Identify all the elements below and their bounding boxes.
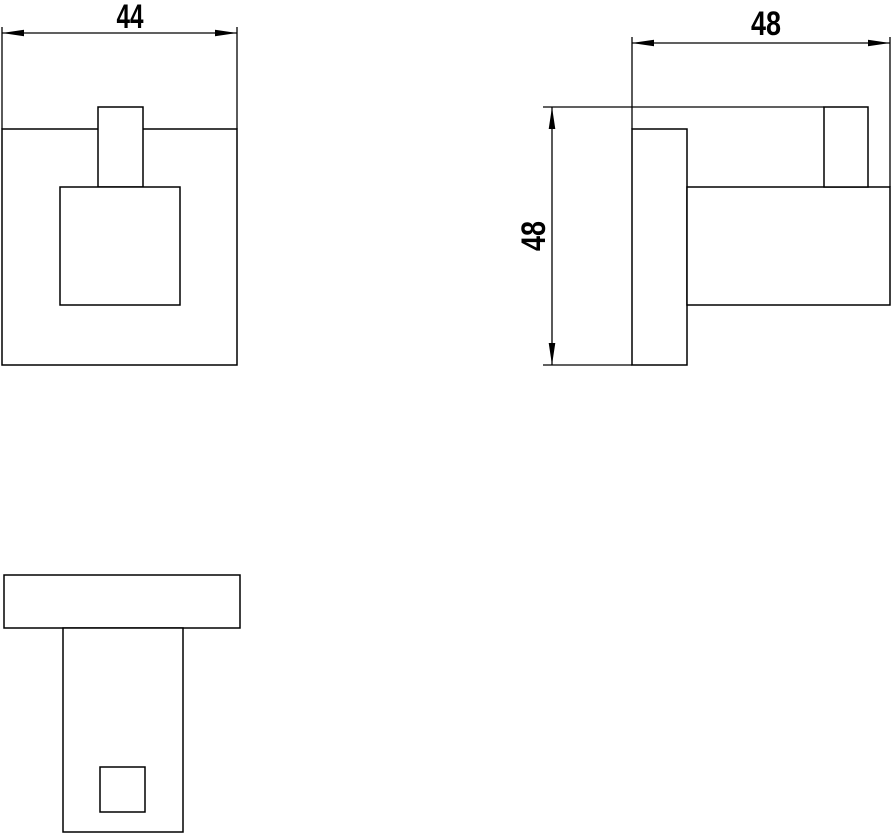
arrow-left-icon: [2, 30, 24, 37]
arrow-down-icon: [549, 343, 556, 365]
drawing-page: 44 48 48: [0, 0, 893, 835]
front-view: [2, 107, 237, 365]
bottom-view: [4, 575, 240, 832]
side-arm-outline: [687, 187, 890, 305]
dimension-label-front-width: 44: [117, 0, 144, 36]
arrow-up-icon: [549, 107, 556, 129]
side-hook-tip-outline: [824, 107, 868, 187]
technical-drawing-canvas: 44 48 48: [0, 0, 893, 835]
side-backplate-outline: [632, 129, 687, 365]
arrow-left-icon: [632, 40, 654, 47]
arrow-right-icon: [215, 30, 237, 37]
arrow-right-icon: [868, 40, 890, 47]
bottom-hook-tip-outline: [100, 767, 145, 812]
dimension-label-side-height: 48: [515, 221, 553, 251]
dimension-label-side-depth: 48: [751, 5, 781, 43]
front-hook-tip-outline: [98, 107, 143, 187]
front-arm-face-outline: [60, 187, 180, 305]
bottom-backplate-outline: [4, 575, 240, 628]
side-view: [632, 107, 890, 365]
